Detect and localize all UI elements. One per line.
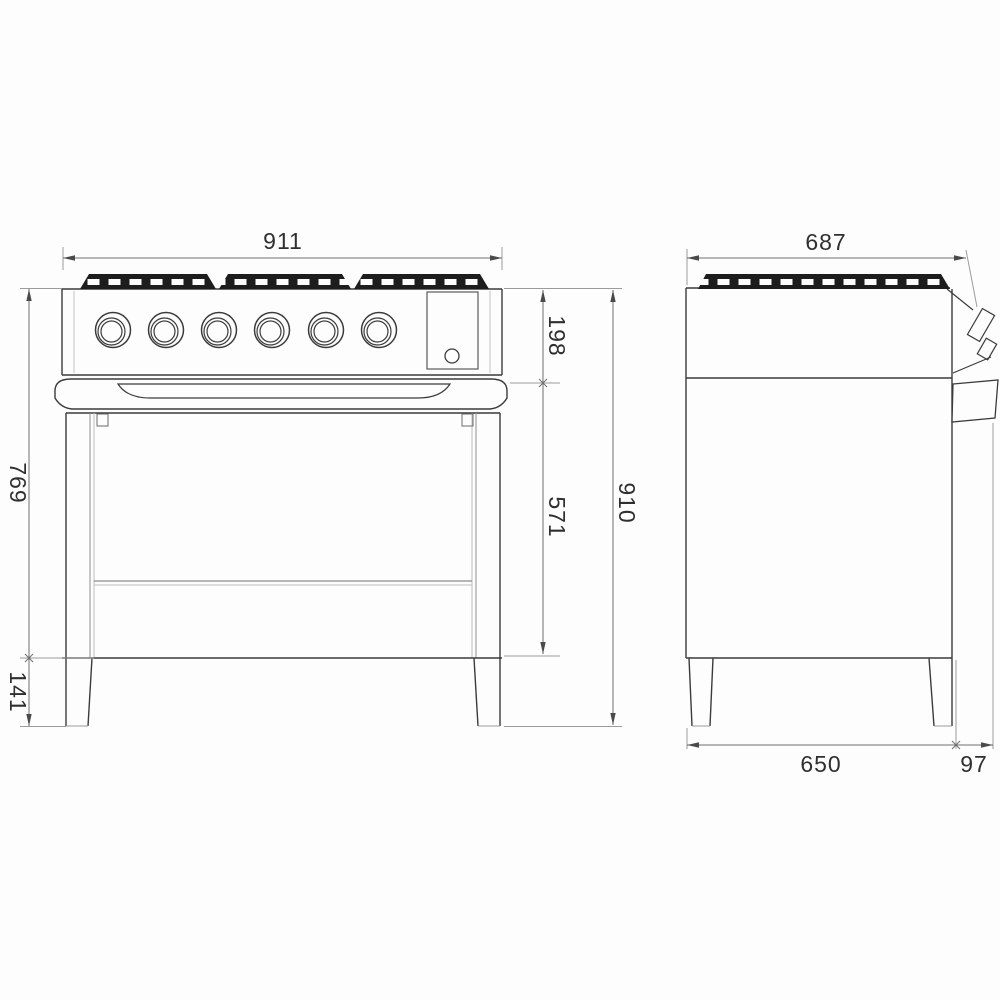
dim-front-left-heights: 769 141 <box>5 289 94 727</box>
burner-knob-1 <box>96 313 131 348</box>
dim-label-body-depth: 650 <box>800 751 841 777</box>
front-leg-right <box>474 658 500 726</box>
dim-label-height-above-legs: 769 <box>5 462 31 503</box>
handle-rail-band <box>55 379 507 409</box>
front-leg-left <box>66 658 92 726</box>
oven-door-handle <box>118 384 450 398</box>
grate-center <box>219 274 351 289</box>
dim-label-control-panel-height: 198 <box>544 315 570 356</box>
dim-label-total-depth: 687 <box>805 229 846 255</box>
dim-front-total-height: 910 <box>504 290 640 727</box>
burner-knobs-row <box>96 313 397 348</box>
grate-left <box>80 274 216 289</box>
dim-label-total-height: 910 <box>614 482 640 523</box>
arrow-up-icon <box>610 290 615 302</box>
burner-knob-4 <box>255 313 290 348</box>
knob-bracket-upper <box>947 289 973 310</box>
grate-side-profile <box>698 274 950 289</box>
front-legs <box>66 658 500 726</box>
arrow-right-icon <box>954 255 966 260</box>
dim-label-oven-section-height: 571 <box>544 496 570 537</box>
arrow-up-icon <box>26 289 31 301</box>
door-hinge-left <box>97 414 108 426</box>
burner-knob-6 <box>362 313 397 348</box>
arrow-down-icon <box>26 714 31 726</box>
arrow-left-icon <box>687 742 699 747</box>
oven-cabinet <box>62 413 502 658</box>
dim-side-bottom: 650 97 <box>687 423 993 777</box>
dim-side-depth: 687 <box>687 229 977 307</box>
dimension-diagram-svg: 911 769 141 198 571 <box>0 0 1000 1000</box>
dim-label-leg-height: 141 <box>5 671 31 712</box>
pan-support-grates <box>80 274 489 289</box>
arrow-down-icon <box>540 642 545 654</box>
arrow-left-icon <box>687 255 699 260</box>
knob-bracket-lower <box>953 357 991 373</box>
indicator-button <box>445 349 459 363</box>
burner-knob-5 <box>309 313 344 348</box>
knob-profile-large <box>967 309 994 342</box>
arrow-up-icon <box>540 290 545 302</box>
side-body <box>686 288 952 658</box>
dimension-annotations: 911 769 141 198 571 <box>5 228 993 777</box>
door-handle-profile <box>952 380 998 422</box>
arrow-right-icon <box>981 742 993 747</box>
dim-label-front-width: 911 <box>263 228 303 254</box>
arrow-down-icon <box>610 713 615 725</box>
dim-front-inner-heights: 198 571 <box>504 289 622 657</box>
arrow-left-icon <box>63 255 75 260</box>
display-panel-frame <box>427 292 478 369</box>
knob-side-profile <box>947 289 997 373</box>
technical-drawing-canvas: 911 769 141 198 571 <box>0 0 1000 1000</box>
burner-knob-3 <box>202 313 237 348</box>
burner-knob-2 <box>149 313 184 348</box>
side-leg-front <box>929 658 952 726</box>
dim-label-handle-protrusion: 97 <box>960 751 988 777</box>
control-display-panel <box>427 292 478 369</box>
arrow-right-icon <box>490 255 502 260</box>
grate-right <box>354 274 489 289</box>
front-view <box>55 274 507 726</box>
cooktop-control-panel <box>62 289 502 375</box>
door-hinge-right <box>462 414 473 426</box>
side-view <box>686 274 998 726</box>
dim-front-width: 911 <box>63 228 502 270</box>
side-legs <box>689 658 952 726</box>
side-leg-back <box>689 658 713 726</box>
